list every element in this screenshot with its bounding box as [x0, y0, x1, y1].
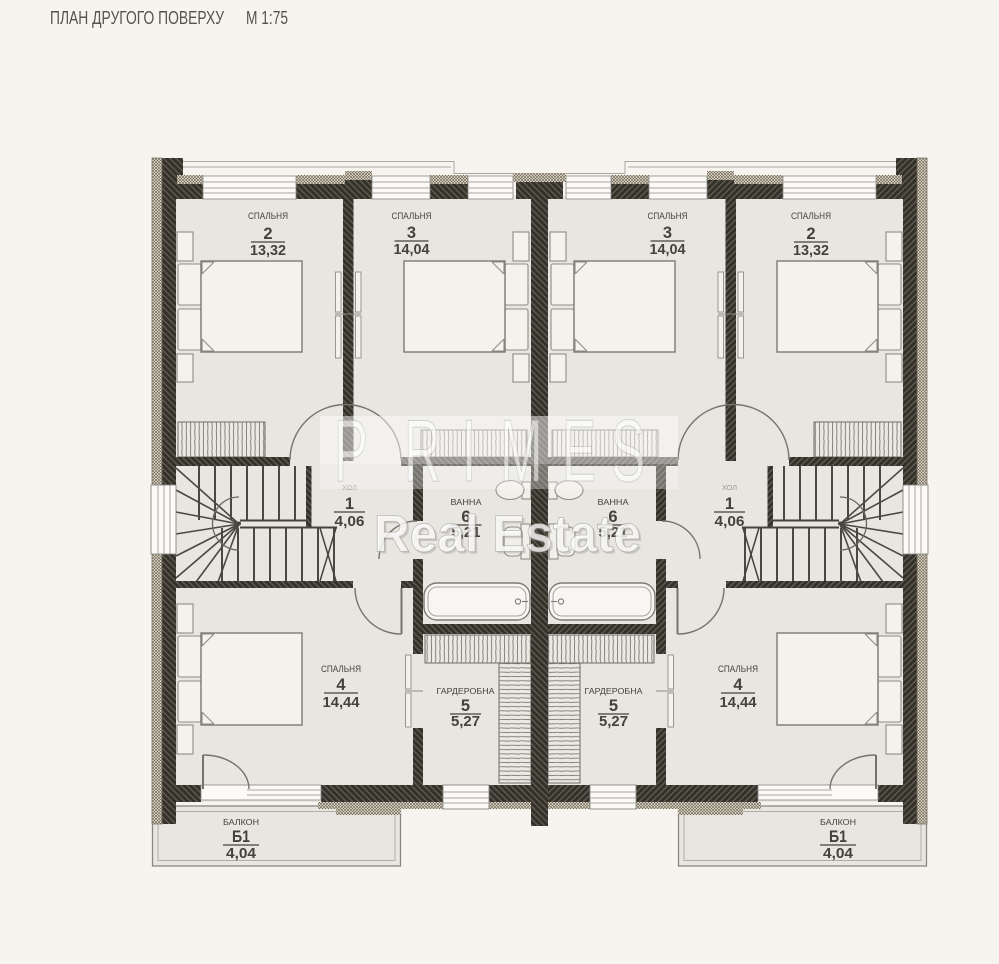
svg-text:3: 3	[663, 224, 672, 242]
svg-text:ГАРДЕРОБНА: ГАРДЕРОБНА	[585, 686, 643, 696]
svg-text:4,06: 4,06	[335, 513, 365, 530]
svg-text:4: 4	[733, 676, 743, 694]
svg-text:4,04: 4,04	[823, 845, 854, 862]
svg-text:14,04: 14,04	[394, 241, 431, 258]
svg-text:1: 1	[725, 495, 734, 513]
svg-text:М 1:75: М 1:75	[246, 8, 288, 28]
svg-text:E: E	[562, 403, 596, 501]
svg-text:5,27: 5,27	[451, 713, 480, 730]
svg-text:ГАРДЕРОБНА: ГАРДЕРОБНА	[437, 686, 495, 696]
svg-text:4,06: 4,06	[715, 513, 745, 530]
svg-text:Б1: Б1	[829, 828, 847, 846]
svg-text:5,27: 5,27	[599, 713, 628, 730]
svg-text:ХОЛ: ХОЛ	[722, 483, 737, 492]
svg-text:Real Estate: Real Estate	[374, 506, 641, 564]
svg-text:СПАЛЬНЯ: СПАЛЬНЯ	[392, 211, 432, 221]
svg-text:14,44: 14,44	[323, 694, 361, 711]
svg-text:БАЛКОН: БАЛКОН	[223, 818, 259, 827]
svg-text:M: M	[500, 403, 543, 501]
svg-text:БАЛКОН: БАЛКОН	[820, 818, 856, 827]
svg-text:13,32: 13,32	[250, 242, 286, 259]
svg-text:S: S	[611, 403, 645, 501]
svg-text:4: 4	[336, 676, 346, 694]
svg-text:4,04: 4,04	[226, 845, 257, 862]
svg-text:СПАЛЬНЯ: СПАЛЬНЯ	[718, 664, 758, 674]
svg-text:I: I	[462, 403, 476, 501]
svg-text:СПАЛЬНЯ: СПАЛЬНЯ	[321, 664, 361, 674]
svg-text:2: 2	[806, 225, 815, 243]
svg-text:2: 2	[263, 225, 272, 243]
svg-text:14,04: 14,04	[650, 241, 687, 258]
svg-text:14,44: 14,44	[720, 694, 758, 711]
svg-text:СПАЛЬНЯ: СПАЛЬНЯ	[248, 211, 288, 221]
svg-text:13,32: 13,32	[793, 242, 829, 259]
svg-text:Б1: Б1	[232, 828, 250, 846]
svg-text:R: R	[404, 403, 441, 501]
svg-text:P: P	[334, 403, 368, 501]
svg-text:3: 3	[407, 224, 416, 242]
svg-text:СПАЛЬНЯ: СПАЛЬНЯ	[648, 211, 688, 221]
svg-text:СПАЛЬНЯ: СПАЛЬНЯ	[791, 211, 831, 221]
svg-text:ПЛАН ДРУГОГО ПОВЕРХУ: ПЛАН ДРУГОГО ПОВЕРХУ	[50, 8, 224, 28]
